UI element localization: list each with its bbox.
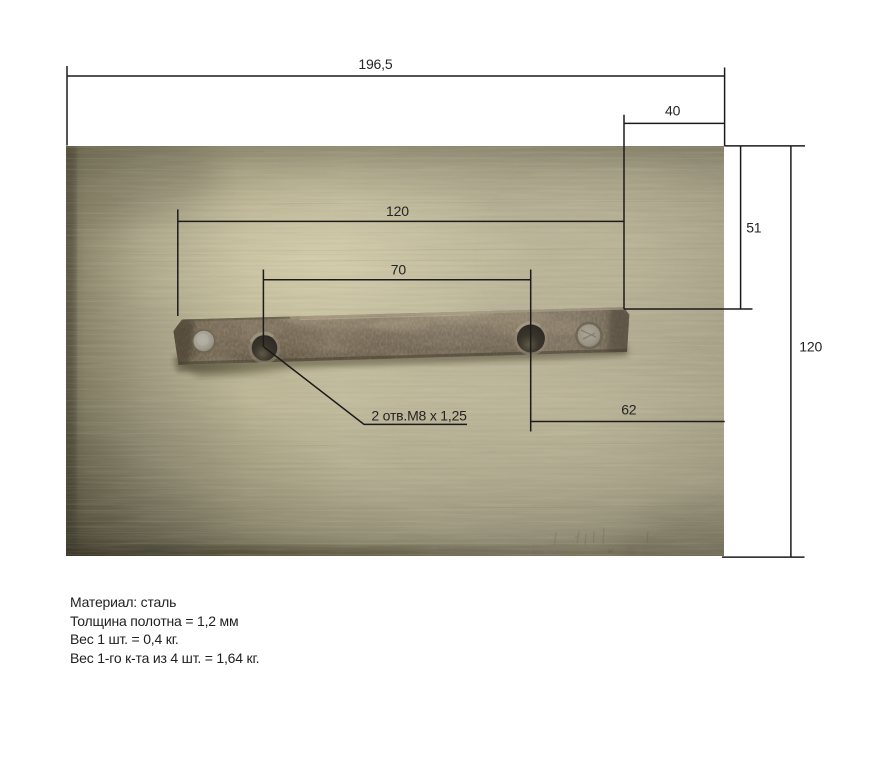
- svg-text:2 отв.М8 х 1,25: 2 отв.М8 х 1,25: [371, 407, 467, 423]
- svg-text:40: 40: [665, 102, 681, 118]
- svg-text:51: 51: [746, 219, 762, 235]
- svg-text:62: 62: [621, 401, 637, 417]
- svg-text:120: 120: [386, 203, 409, 219]
- svg-text:70: 70: [391, 262, 407, 278]
- svg-text:196,5: 196,5: [358, 56, 392, 72]
- svg-text:120: 120: [799, 339, 822, 355]
